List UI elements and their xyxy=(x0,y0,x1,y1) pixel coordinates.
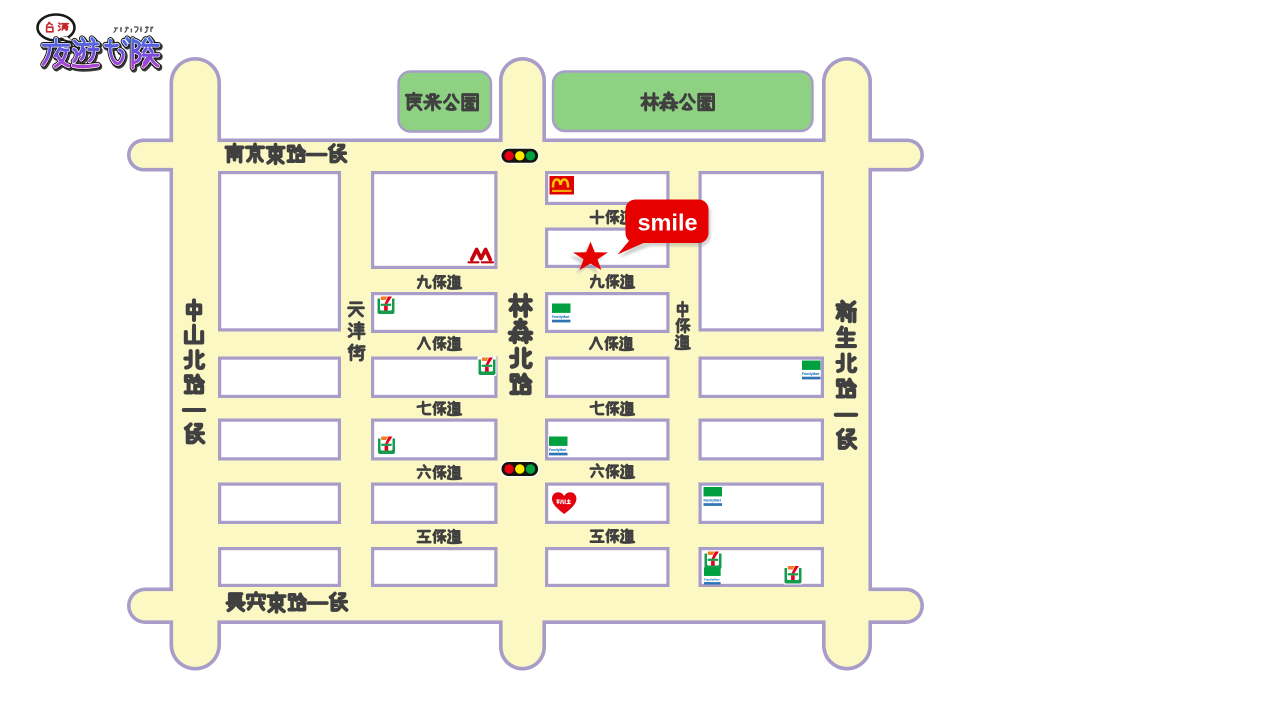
svg-text:FamilyMart: FamilyMart xyxy=(549,448,567,452)
svg-text:FamilyMart: FamilyMart xyxy=(704,578,720,582)
svg-text:FamilyMart: FamilyMart xyxy=(802,372,820,376)
svg-text:FamilyMart: FamilyMart xyxy=(704,499,722,503)
svg-text:FamilyMart: FamilyMart xyxy=(552,315,570,319)
svg-text:smile: smile xyxy=(637,210,697,236)
